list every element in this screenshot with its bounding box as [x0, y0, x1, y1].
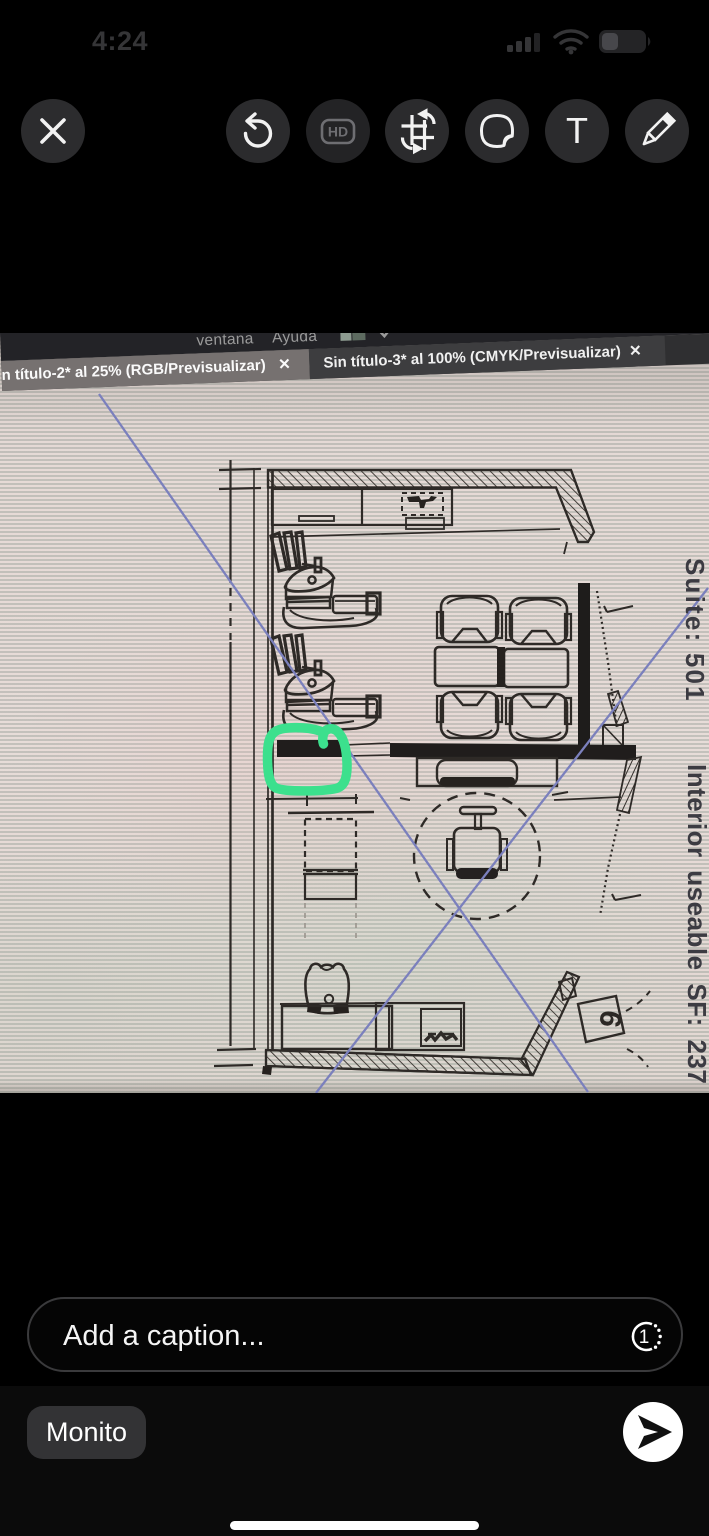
- svg-text:HD: HD: [328, 124, 348, 140]
- svg-text:Interior useable SF: 237: Interior useable SF: 237: [682, 764, 709, 1084]
- svg-text:T: T: [566, 110, 588, 151]
- svg-text:Suite: 501: Suite: 501: [680, 558, 709, 703]
- svg-text:1: 1: [639, 1327, 650, 1348]
- svg-text:6: 6: [592, 1008, 627, 1030]
